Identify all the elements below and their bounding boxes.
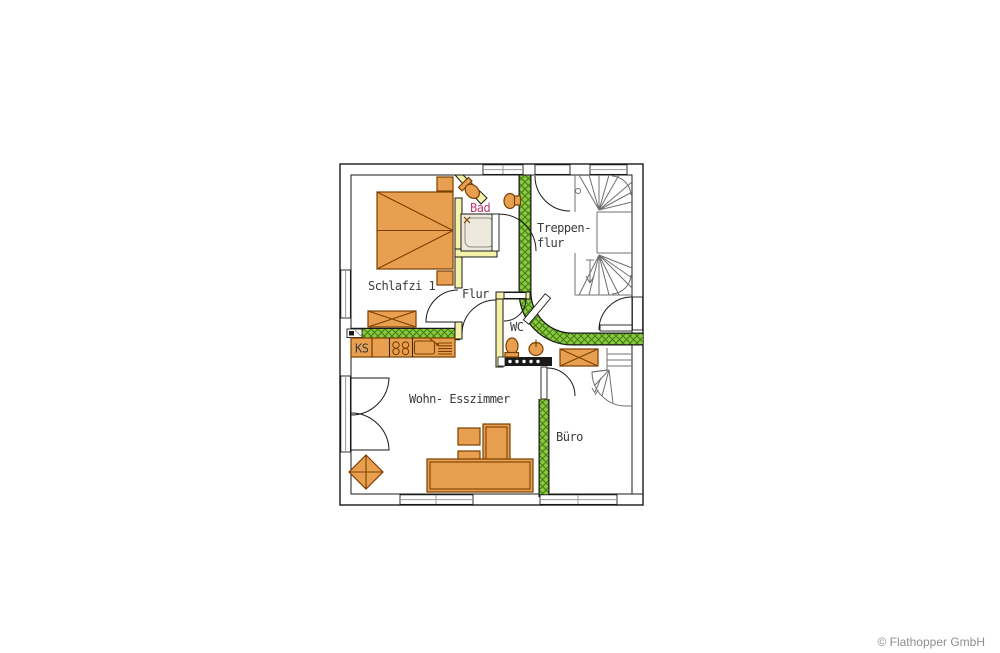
wardrobe-icon: [560, 349, 598, 366]
window-top-stairwell: [590, 165, 627, 175]
label-treppenflur-line1: Treppen-: [537, 221, 591, 235]
nightstand: [437, 177, 453, 191]
wardrobe-icon: [368, 311, 416, 327]
window-bottom-buero: [540, 495, 617, 505]
floorplan-drawing: Schlafzi 1 Bad Flur Treppen- flur WC KS …: [0, 0, 1000, 653]
stairwell: [523, 175, 632, 331]
wc-counter-end: [498, 357, 505, 366]
wall-wc-left: [496, 292, 503, 367]
window-top-bad: [483, 165, 523, 175]
party-wall-right: [632, 337, 643, 494]
stairwell-side-door-opening: [632, 297, 642, 330]
house-entrance-door: [535, 176, 570, 211]
balcony-door-opening: [341, 376, 351, 452]
label-wc: WC: [510, 320, 524, 334]
nightstand: [437, 271, 453, 285]
flur-wohnzimmer-door: [462, 300, 496, 334]
label-schlafzimmer: Schlafzi 1: [368, 279, 436, 293]
label-ks: KS: [355, 342, 369, 356]
window-left-schlafzimmer: [341, 270, 351, 318]
label-flur: Flur: [462, 287, 489, 301]
label-buero: Büro: [556, 430, 583, 444]
label-bad: Bad: [470, 201, 490, 215]
label-wohnesszimmer: Wohn- Esszimmer: [409, 392, 510, 406]
schlafzimmer-furniture: [368, 177, 458, 327]
stairwell-side-door: [599, 297, 632, 331]
schlafzimmer-door: [426, 290, 458, 322]
staircase-main: [575, 175, 632, 295]
toilet-icon: [505, 338, 519, 357]
floorplan-page: Schlafzi 1 Bad Flur Treppen- flur WC KS …: [0, 0, 1000, 653]
copyright-text: © Flathopper GmbH: [877, 635, 985, 649]
label-treppenflur-line2: flur: [537, 236, 564, 250]
wall-schlafzimmer-flur-lower: [455, 322, 462, 339]
washbasin-icon: [504, 194, 521, 209]
buero-door: [541, 367, 575, 399]
side-table: [458, 428, 480, 445]
window-bottom-wohnzimmer: [400, 495, 473, 505]
stairwell-floor: [527, 175, 632, 337]
entrance-door-opening: [535, 165, 570, 175]
buero-room: [541, 348, 632, 406]
balcony-double-door: [351, 378, 389, 450]
double-bed: [377, 192, 453, 269]
plant-icon: [349, 455, 383, 489]
washbasin-icon: [529, 340, 543, 356]
radiator-symbol: [347, 329, 362, 338]
